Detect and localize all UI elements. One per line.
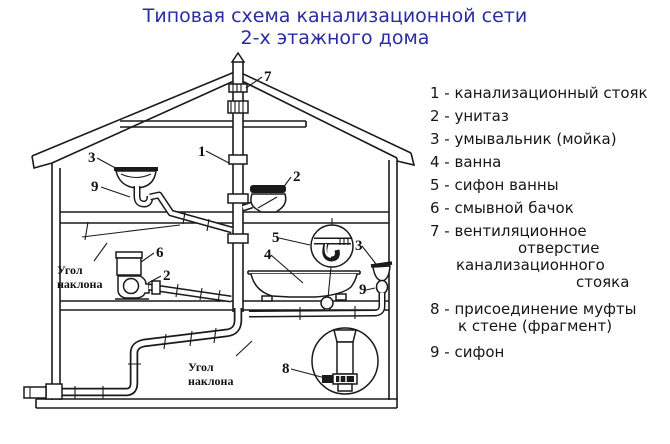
legend-item-7-line-4: стояка: [430, 274, 670, 291]
callout-3-middle: 3: [355, 238, 363, 254]
wall-coupling-detail: [312, 328, 378, 394]
legend-item-3: 3 - умывальник (мойка): [430, 131, 670, 148]
callout-3-top: 3: [88, 150, 96, 166]
legend-item-7-line-1: 7 - вентиляционное: [430, 223, 670, 240]
vent-cap-icon: [232, 53, 244, 62]
toilet-drain-pipe: [149, 281, 231, 302]
callout-6: 6: [156, 245, 164, 261]
callout-9-top: 9: [91, 179, 99, 195]
legend-item-1: 1 - канализационный стояк: [430, 85, 670, 102]
legend-item-8-line-2: к стене (фрагмент): [430, 318, 670, 335]
legend-item-7-line-2: отверстие: [430, 240, 670, 257]
slope-label-middle-line2: наклона: [57, 277, 102, 291]
wall-sleeve: [46, 384, 62, 399]
legend-item-2: 2 - унитаз: [430, 108, 670, 125]
callout-1: 1: [198, 144, 206, 160]
legend-item-7-line-3: канализационного: [430, 257, 670, 274]
legend-item-9: 9 - сифон: [430, 344, 670, 361]
bathtub: [248, 271, 360, 301]
slope-label-middle-line1: Угол: [57, 263, 83, 277]
callout-4: 4: [264, 247, 272, 263]
siphon-top: [137, 186, 150, 204]
cistern: [116, 252, 142, 275]
callout-5: 5: [272, 230, 280, 246]
siphon-middle: [377, 281, 388, 294]
outfall-stub: [24, 387, 46, 398]
legend-item-5: 5 - сифон ванны: [430, 177, 670, 194]
callout-2-top: 2: [293, 169, 301, 185]
washbasin-drain-pipe: [150, 195, 232, 231]
sewage-stack: [228, 53, 248, 312]
callout-2-middle: 2: [163, 268, 171, 284]
callout-7: 7: [264, 69, 272, 85]
legend-item-6: 6 - смывной бачок: [430, 200, 670, 217]
toilet-top: [243, 185, 286, 212]
callout-8: 8: [282, 361, 290, 377]
legend-item-4: 4 - ванна: [430, 154, 670, 171]
callout-9-middle: 9: [359, 282, 367, 298]
basement-collector-pipe: [249, 306, 375, 320]
washbasin-top: [114, 169, 158, 188]
washbasin-middle-drain: [374, 293, 382, 313]
slope-label-basement-line2: наклона: [188, 374, 233, 388]
legend-item-8-line-1: 8 - присоединение муфты: [430, 301, 670, 318]
toilet-middle: [115, 276, 149, 299]
slope-label-basement-line1: Угол: [188, 360, 214, 374]
legend: 1 - канализационный стояк 2 - унитаз 3 -…: [430, 85, 670, 361]
page: Типовая схема канализационной сети 2-х э…: [0, 0, 670, 444]
